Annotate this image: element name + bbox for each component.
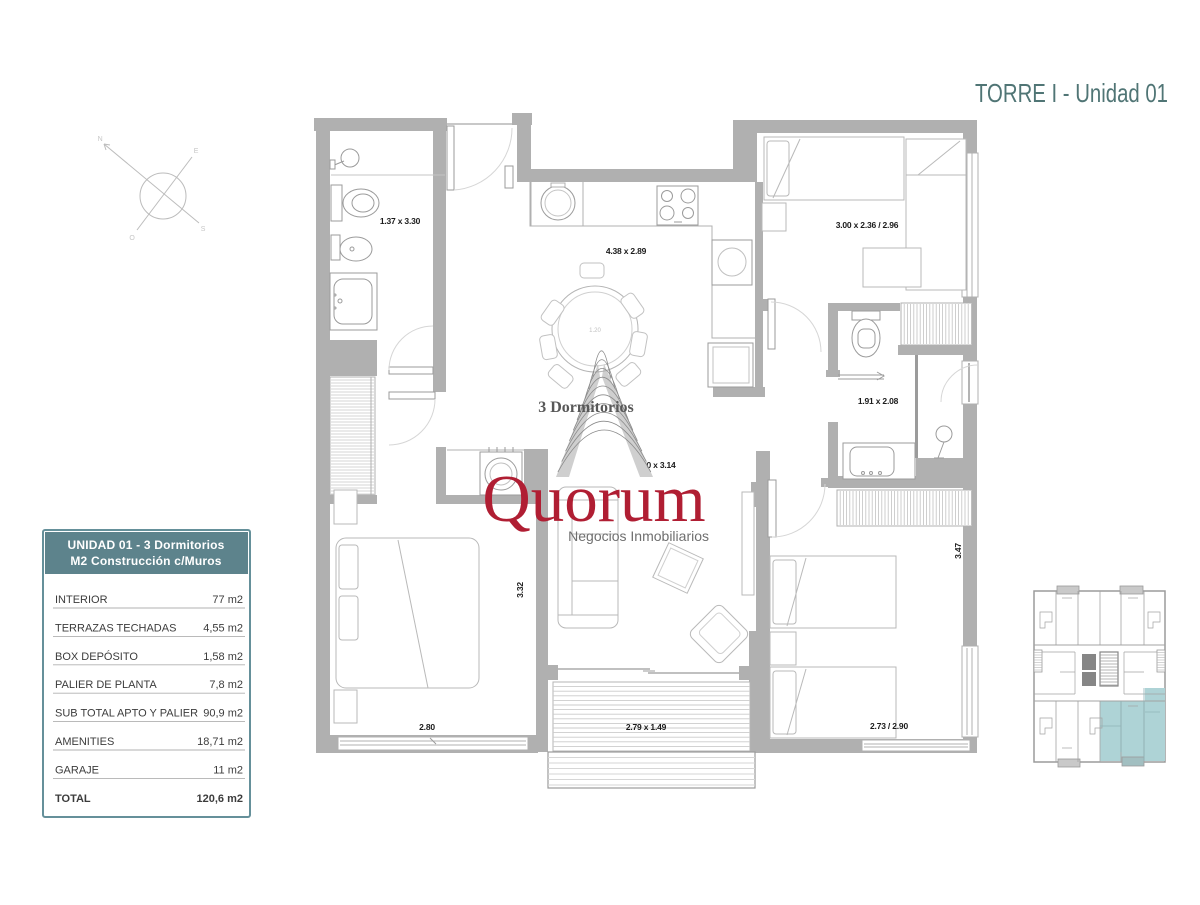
svg-text:S: S <box>201 226 206 233</box>
svg-text:Quorum: Quorum <box>482 462 705 536</box>
svg-text:Negocios Inmobiliarios: Negocios Inmobiliarios <box>568 528 709 544</box>
svg-text:2.79 x 1.49: 2.79 x 1.49 <box>626 722 667 732</box>
svg-text:2.73 / 2.90: 2.73 / 2.90 <box>870 721 908 731</box>
svg-text:90,9 m2: 90,9 m2 <box>203 708 243 720</box>
svg-text:O: O <box>129 235 135 242</box>
svg-text:11 m2: 11 m2 <box>213 764 243 776</box>
svg-text:120,6 m2: 120,6 m2 <box>197 793 243 805</box>
svg-text:7,8 m2: 7,8 m2 <box>209 679 243 691</box>
svg-text:4,55 m2: 4,55 m2 <box>203 622 243 634</box>
svg-text:TORRE I - Unidad 01: TORRE I - Unidad 01 <box>975 78 1168 108</box>
svg-text:E: E <box>194 148 199 155</box>
svg-text:77 m2: 77 m2 <box>212 594 243 606</box>
svg-text:N: N <box>98 136 103 143</box>
svg-text:1.20: 1.20 <box>589 328 601 334</box>
svg-text:GARAJE: GARAJE <box>55 764 99 776</box>
svg-text:4.38 x 2.89: 4.38 x 2.89 <box>606 246 647 256</box>
svg-text:BOX DEPÓSITO: BOX DEPÓSITO <box>55 650 138 663</box>
svg-text:TOTAL: TOTAL <box>55 793 91 805</box>
svg-text:SUB TOTAL APTO Y PALIER: SUB TOTAL APTO Y PALIER <box>55 708 198 720</box>
svg-text:TERRAZAS TECHADAS: TERRAZAS TECHADAS <box>55 622 176 634</box>
svg-text:M2 Construcción c/Muros: M2 Construcción c/Muros <box>70 554 221 568</box>
svg-text:AMENITIES: AMENITIES <box>55 736 114 748</box>
svg-text:18,71 m2: 18,71 m2 <box>197 736 243 748</box>
svg-text:1.91 x 2.08: 1.91 x 2.08 <box>858 396 899 406</box>
svg-text:1.37 x 3.30: 1.37 x 3.30 <box>380 216 421 226</box>
svg-text:PALIER DE PLANTA: PALIER DE PLANTA <box>55 679 157 691</box>
svg-text:UNIDAD 01 - 3 Dormitorios: UNIDAD 01 - 3 Dormitorios <box>67 538 224 552</box>
svg-text:2.80: 2.80 <box>419 722 435 732</box>
svg-text:3.32: 3.32 <box>515 582 525 598</box>
svg-text:3.47: 3.47 <box>953 543 963 559</box>
svg-text:3.00 x 2.36 / 2.96: 3.00 x 2.36 / 2.96 <box>836 220 899 230</box>
svg-text:INTERIOR: INTERIOR <box>55 594 108 606</box>
svg-text:1,58 m2: 1,58 m2 <box>203 651 243 663</box>
svg-text:3 Dormitorios: 3 Dormitorios <box>538 399 634 416</box>
